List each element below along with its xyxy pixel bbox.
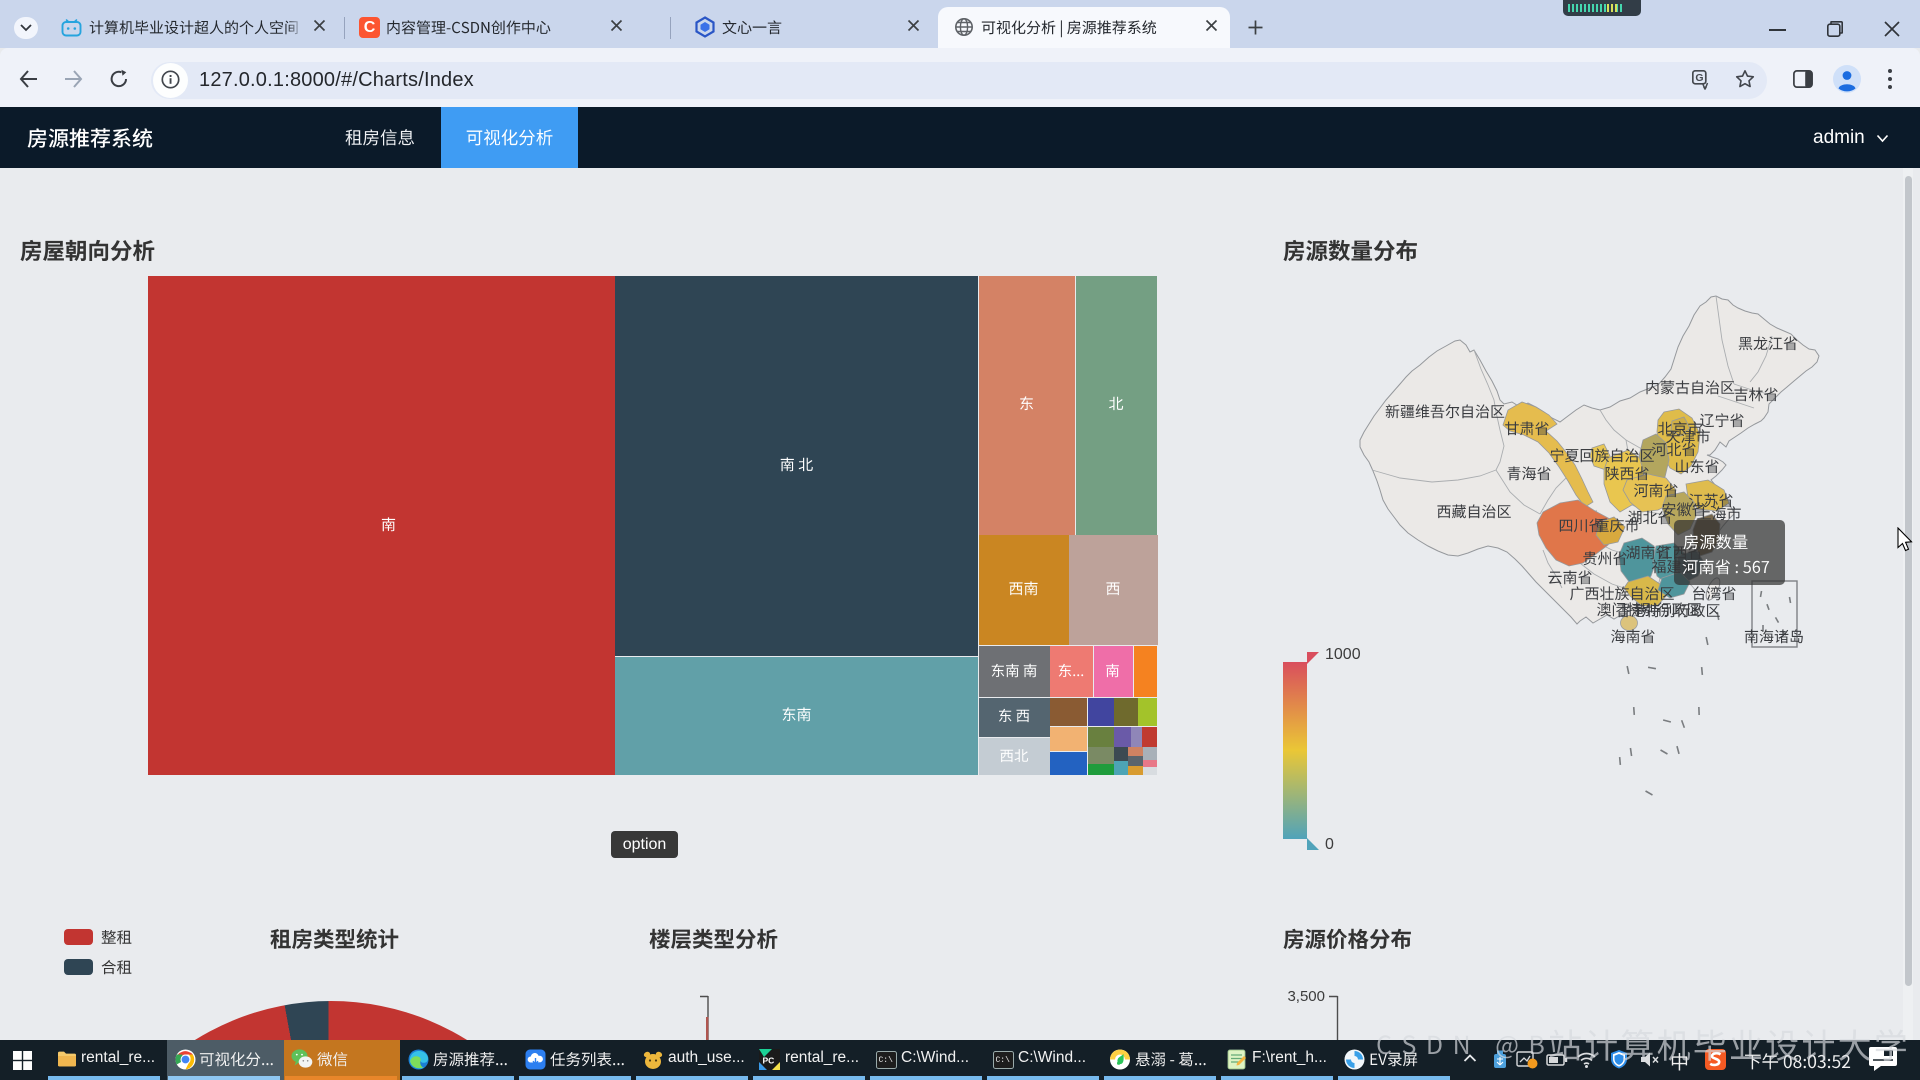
svg-text:PC: PC [763,1056,775,1066]
svg-text:C:\: C:\ [879,1056,894,1065]
svg-text:G: G [1695,72,1703,84]
svg-text:C:\: C:\ [996,1056,1011,1065]
